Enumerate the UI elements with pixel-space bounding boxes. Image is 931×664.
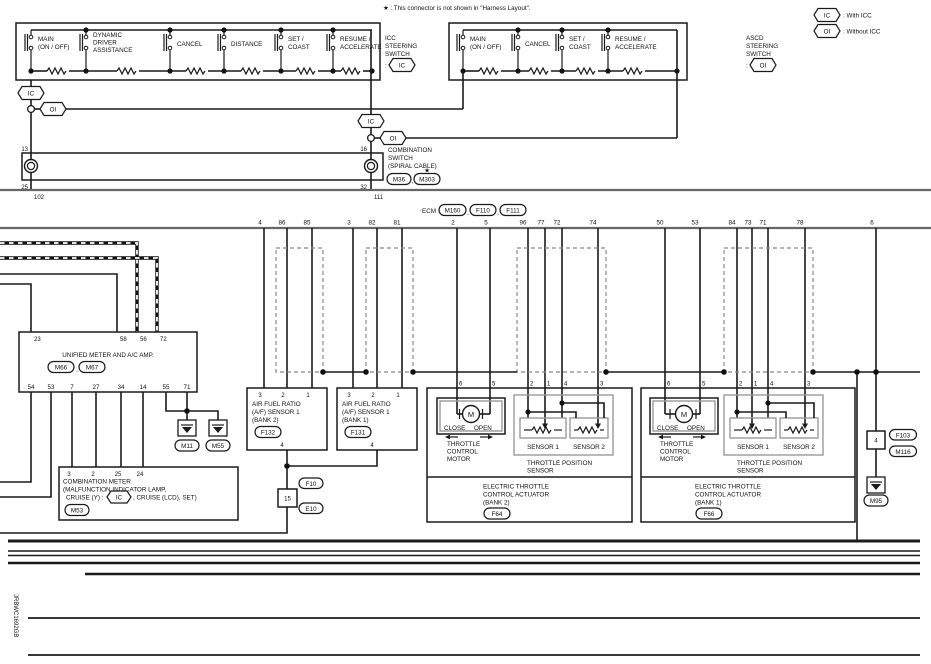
- svg-text:M95: M95: [870, 498, 883, 505]
- svg-text:14: 14: [139, 384, 147, 391]
- svg-text:F110: F110: [476, 207, 490, 214]
- svg-text:71: 71: [759, 220, 767, 227]
- icc-bottom-bus: [31, 68, 372, 74]
- svg-text:3: 3: [807, 382, 811, 388]
- svg-text:4: 4: [258, 220, 262, 227]
- svg-text:SENSOR: SENSOR: [527, 468, 554, 475]
- svg-text:F66: F66: [704, 511, 715, 518]
- svg-text:27: 27: [92, 384, 100, 391]
- icc-resume-label: RESUME /: [340, 36, 371, 43]
- svg-text:CONTROL: CONTROL: [447, 449, 478, 456]
- svg-text:IC: IC: [116, 494, 123, 501]
- icc-set-switch: [275, 30, 283, 71]
- svg-text:M36: M36: [393, 176, 406, 183]
- svg-text:4: 4: [564, 382, 568, 388]
- svg-text:THROTTLE: THROTTLE: [447, 441, 480, 448]
- svg-text:(BANK 2): (BANK 2): [252, 417, 279, 424]
- actuator2-name: ELECTRIC THROTTLE: [483, 484, 549, 491]
- spiral-contact-left: [25, 160, 38, 173]
- svg-text:COAST: COAST: [569, 44, 591, 51]
- motor-m: M: [468, 410, 474, 419]
- icc-cancel-switch: [164, 30, 172, 71]
- svg-text:M67: M67: [86, 364, 99, 371]
- legend-oi-symbol: OI: [814, 25, 840, 38]
- svg-text:CRUISE (Y) :: CRUISE (Y) :: [66, 495, 104, 502]
- icc-set-label: SET /: [288, 36, 304, 43]
- throttle-position-sensor-bank1: SENSOR 1 SENSOR 2: [724, 395, 823, 455]
- svg-text:53: 53: [691, 220, 699, 227]
- svg-text:THROTTLE POSITION: THROTTLE POSITION: [737, 460, 803, 467]
- svg-text:24: 24: [137, 472, 144, 478]
- svg-text:3: 3: [347, 220, 351, 227]
- branch-ic2-symbol: IC: [358, 115, 384, 128]
- legend-oi-tag: OI: [824, 28, 831, 35]
- ascd-set-label: SET /: [569, 36, 585, 43]
- svg-text:SWITCH: SWITCH: [385, 51, 410, 58]
- legend-ic-tag: IC: [824, 12, 831, 19]
- svg-text:6: 6: [667, 382, 671, 388]
- svg-text:(A/F) SENSOR 1: (A/F) SENSOR 1: [342, 409, 390, 416]
- svg-text:4: 4: [280, 443, 284, 449]
- legend-oi-desc: : Without ICC: [843, 28, 881, 35]
- svg-text:OI: OI: [390, 135, 397, 142]
- svg-text:F111: F111: [506, 207, 520, 214]
- pin-16: 16: [360, 147, 367, 153]
- svg-text:2: 2: [371, 393, 375, 399]
- branch-oi2-symbol: OI: [380, 132, 406, 145]
- svg-text:STEERING: STEERING: [385, 43, 417, 50]
- svg-text:, CRUISE (LCD), SET): , CRUISE (LCD), SET): [133, 495, 197, 502]
- icc-steering-switch: MAIN (ON / OFF) DYNAMIC DRIVER ASSISTANC…: [16, 23, 417, 80]
- svg-text:1: 1: [306, 393, 310, 399]
- svg-text:96: 96: [519, 220, 527, 227]
- svg-text:(BANK 2): (BANK 2): [483, 500, 510, 507]
- note-text: ★ : This connector is not shown in "Harn…: [383, 5, 531, 12]
- legend: IC : With ICC OI : Without ICC: [814, 9, 881, 38]
- icc-resume-switch: [327, 30, 335, 71]
- svg-text:(BANK 1): (BANK 1): [342, 417, 369, 424]
- svg-text:F131: F131: [351, 429, 366, 436]
- actuator1-name: ELECTRIC THROTTLE: [695, 484, 761, 491]
- svg-text:MOTOR: MOTOR: [447, 456, 471, 463]
- branch-junction-1: [28, 106, 35, 113]
- branch-ic1-symbol: IC: [18, 87, 44, 100]
- svg-text:2: 2: [91, 472, 95, 478]
- svg-text:6: 6: [870, 220, 874, 227]
- icc-main-switch: [25, 30, 33, 71]
- svg-text:CONTROL: CONTROL: [660, 449, 691, 456]
- unified-meter: 23 58 56 72 UNIFIED METER AND A/C AMP. M…: [19, 332, 197, 392]
- svg-text:50: 50: [656, 220, 664, 227]
- resistor: [47, 68, 66, 74]
- actuator-bank1: 6 5 2 1 4 3 M CLOSE OPEN THROTTLE CONTRO…: [641, 382, 855, 523]
- svg-text:3: 3: [258, 393, 262, 399]
- bottom-rails: [8, 541, 920, 655]
- comb-meter-ic-symbol: IC: [107, 491, 131, 503]
- svg-text:4: 4: [874, 439, 878, 445]
- spiral-name: COMBINATION: [388, 147, 432, 154]
- shield-box: [276, 248, 323, 372]
- icc-distance-label: DISTANCE: [231, 41, 262, 48]
- icc-dynamic-switch: [80, 30, 88, 71]
- shield-box: [366, 248, 413, 372]
- svg-text:1: 1: [547, 382, 551, 388]
- ascd-bottom-bus: [463, 68, 677, 74]
- svg-text:2: 2: [451, 220, 455, 227]
- svg-text:3: 3: [600, 382, 604, 388]
- svg-text:56: 56: [140, 337, 147, 343]
- svg-text:34: 34: [117, 384, 125, 391]
- ascd-cancel-label: CANCEL: [525, 41, 551, 48]
- svg-text:F64: F64: [492, 511, 503, 518]
- svg-text:25: 25: [115, 472, 122, 478]
- icc-cancel-label: CANCEL: [177, 41, 203, 48]
- svg-text:72: 72: [160, 337, 167, 343]
- diagram-code: JRBWC1692GB: [12, 594, 18, 637]
- svg-text:2: 2: [530, 382, 534, 388]
- svg-text:IC: IC: [399, 62, 406, 69]
- svg-text:55: 55: [162, 384, 170, 391]
- svg-text:OI: OI: [760, 62, 767, 69]
- motor-m: M: [681, 410, 687, 419]
- ascd-main-label: MAIN: [470, 36, 486, 43]
- svg-text:THROTTLE: THROTTLE: [660, 441, 693, 448]
- svg-text:86: 86: [278, 220, 286, 227]
- svg-text:5: 5: [492, 382, 496, 388]
- ascd-resume-label: RESUME /: [615, 36, 646, 43]
- ecm-pin-102: 102: [34, 195, 45, 201]
- svg-text:M160: M160: [445, 207, 461, 214]
- svg-text:SENSOR 1: SENSOR 1: [527, 444, 559, 451]
- svg-text:3: 3: [347, 393, 351, 399]
- svg-text:STEERING: STEERING: [746, 43, 778, 50]
- svg-text:CLOSE: CLOSE: [657, 425, 678, 432]
- svg-text:E10: E10: [305, 506, 317, 513]
- af1-name: AIR FUEL RATIO: [342, 401, 391, 408]
- svg-text:,: ,: [76, 367, 78, 374]
- svg-text:SENSOR 2: SENSOR 2: [783, 444, 815, 451]
- ecm-pin-111: 111: [374, 195, 384, 201]
- svg-text:ASSISTANCE: ASSISTANCE: [93, 47, 132, 54]
- icc-distance-switch: [218, 30, 226, 71]
- svg-text:71: 71: [183, 384, 191, 391]
- svg-text:15: 15: [284, 497, 291, 503]
- ground-symbol-m55: [209, 420, 227, 436]
- svg-text:4: 4: [770, 382, 774, 388]
- svg-text:SWITCH: SWITCH: [388, 155, 413, 162]
- ground-symbol-m11: [178, 420, 196, 436]
- svg-text:M66: M66: [55, 364, 68, 371]
- spiral-cable: 13 25 16 32 COMBINATION SWITCH (SPIRAL C…: [21, 147, 440, 191]
- svg-text:THROTTLE POSITION: THROTTLE POSITION: [527, 460, 593, 467]
- af-sensor-bank1: 3 2 1 AIR FUEL RATIO (A/F) SENSOR 1 (BAN…: [337, 388, 417, 450]
- svg-text:MOTOR: MOTOR: [660, 456, 684, 463]
- svg-text:6: 6: [459, 382, 463, 388]
- ascd-set-switch: [556, 30, 564, 71]
- spiral-contact-right: [365, 160, 378, 173]
- ascd-name: ASCD: [746, 35, 764, 42]
- branch-junction-2: [368, 135, 375, 142]
- ground-symbol-m95: [867, 477, 885, 493]
- svg-text:SENSOR: SENSOR: [737, 468, 764, 475]
- svg-text:4: 4: [370, 443, 374, 449]
- svg-text:5: 5: [702, 382, 706, 388]
- svg-text:IC: IC: [368, 118, 375, 125]
- branch-oi1-symbol: OI: [40, 103, 66, 116]
- ecm: 102 111 ECM M160 , F110 , F111 4 86 85 3…: [0, 190, 931, 228]
- svg-text:(ON / OFF): (ON / OFF): [38, 44, 69, 51]
- unified-bottom-pins: 54 53 7 27 34 14 55 71: [27, 384, 191, 391]
- svg-text:78: 78: [796, 220, 804, 227]
- af2-name: AIR FUEL RATIO: [252, 401, 301, 408]
- svg-text:DRIVER: DRIVER: [93, 40, 117, 47]
- wiring-diagram-page: ★ : This connector is not shown in "Harn…: [0, 0, 931, 664]
- combination-meter: 3 2 25 24 COMBINATION METER (MALFUNCTION…: [59, 467, 238, 520]
- svg-text:F103: F103: [896, 432, 911, 439]
- svg-text:72: 72: [553, 220, 561, 227]
- unified-meter-name: UNIFIED METER AND A/C AMP.: [62, 352, 154, 359]
- shielded-wire-72: [0, 258, 157, 332]
- svg-text:84: 84: [728, 220, 736, 227]
- svg-text:M53: M53: [71, 507, 84, 514]
- svg-text::: :: [385, 62, 387, 69]
- icc-name: ICC: [385, 35, 396, 42]
- ascd-tag-symbol: OI: [750, 59, 776, 72]
- svg-text:(ON / OFF): (ON / OFF): [470, 44, 501, 51]
- svg-text:1: 1: [754, 382, 758, 388]
- icc-dynamic-label: DYNAMIC: [93, 32, 122, 39]
- svg-text:1: 1: [396, 393, 400, 399]
- svg-text:77: 77: [537, 220, 545, 227]
- connector-4: 4 F103 M116 M95: [864, 430, 917, 507]
- svg-text:2: 2: [281, 393, 285, 399]
- svg-text:(A/F) SENSOR 1: (A/F) SENSOR 1: [252, 409, 300, 416]
- svg-text:58: 58: [120, 337, 127, 343]
- harness-note: ★ : This connector is not shown in "Harn…: [383, 5, 531, 12]
- svg-text:82: 82: [368, 220, 376, 227]
- svg-text:3: 3: [67, 472, 71, 478]
- svg-text:SENSOR 2: SENSOR 2: [573, 444, 605, 451]
- pin-13: 13: [21, 147, 28, 153]
- svg-text:5: 5: [484, 220, 488, 227]
- svg-text:74: 74: [589, 220, 597, 227]
- svg-text:COAST: COAST: [288, 44, 310, 51]
- svg-text:ACCELERATE: ACCELERATE: [615, 44, 657, 51]
- ecm-bottom-pins: 4 86 85 3 82 81 2 5 96 77 72 74 50 53 84…: [258, 220, 874, 227]
- svg-text:(BANK 1): (BANK 1): [695, 500, 722, 507]
- svg-text:OPEN: OPEN: [474, 425, 492, 432]
- grounds-m11-m55: M11 M55: [175, 420, 230, 451]
- svg-text:85: 85: [303, 220, 311, 227]
- svg-text:OI: OI: [50, 106, 57, 113]
- svg-text:73: 73: [744, 220, 752, 227]
- svg-text:2: 2: [739, 382, 743, 388]
- svg-text:F132: F132: [261, 429, 276, 436]
- svg-text:53: 53: [47, 384, 55, 391]
- svg-text:23: 23: [34, 337, 41, 343]
- icc-tag-symbol: IC: [389, 59, 415, 72]
- wiring-diagram: ★ : This connector is not shown in "Harn…: [0, 0, 931, 664]
- ecm-label: ECM: [422, 208, 436, 215]
- svg-text:,: ,: [467, 210, 469, 217]
- svg-text:IC: IC: [28, 90, 35, 97]
- svg-text:CONTROL ACTUATOR: CONTROL ACTUATOR: [483, 492, 549, 499]
- svg-text::: :: [746, 62, 748, 69]
- svg-text:,: ,: [412, 178, 414, 185]
- svg-text:OPEN: OPEN: [687, 425, 705, 432]
- svg-text:M11: M11: [181, 443, 193, 450]
- svg-text:CLOSE: CLOSE: [444, 425, 465, 432]
- legend-ic-desc: : With ICC: [843, 12, 872, 19]
- ascd-resume-switch: [602, 30, 610, 71]
- svg-text:7: 7: [70, 384, 74, 391]
- icc-main-label: MAIN: [38, 36, 54, 43]
- svg-text:F10: F10: [306, 481, 317, 488]
- legend-ic-symbol: IC: [814, 9, 840, 22]
- ascd-main-switch: [457, 30, 465, 71]
- svg-text:54: 54: [27, 384, 35, 391]
- ascd-steering-switch: MAIN (ON / OFF) CANCEL SET / COAST RESUM…: [449, 23, 778, 80]
- svg-text:SENSOR 1: SENSOR 1: [737, 444, 769, 451]
- comb-meter-name: COMBINATION METER: [63, 479, 131, 486]
- svg-text:CONTROL ACTUATOR: CONTROL ACTUATOR: [695, 492, 761, 499]
- svg-text:81: 81: [393, 220, 401, 227]
- svg-text:M116: M116: [895, 449, 911, 456]
- ascd-cancel-switch: [512, 30, 520, 71]
- svg-text:,: ,: [497, 210, 499, 217]
- svg-text:M303: M303: [419, 176, 435, 183]
- svg-text:ACCELERATE: ACCELERATE: [340, 44, 382, 51]
- svg-text:M55: M55: [212, 443, 225, 450]
- af-sensor-bank2: 3 2 1 AIR FUEL RATIO (A/F) SENSOR 1 (BAN…: [247, 388, 327, 450]
- connector-15: 15 F10 E10: [278, 478, 323, 514]
- svg-text:SWITCH: SWITCH: [746, 51, 771, 58]
